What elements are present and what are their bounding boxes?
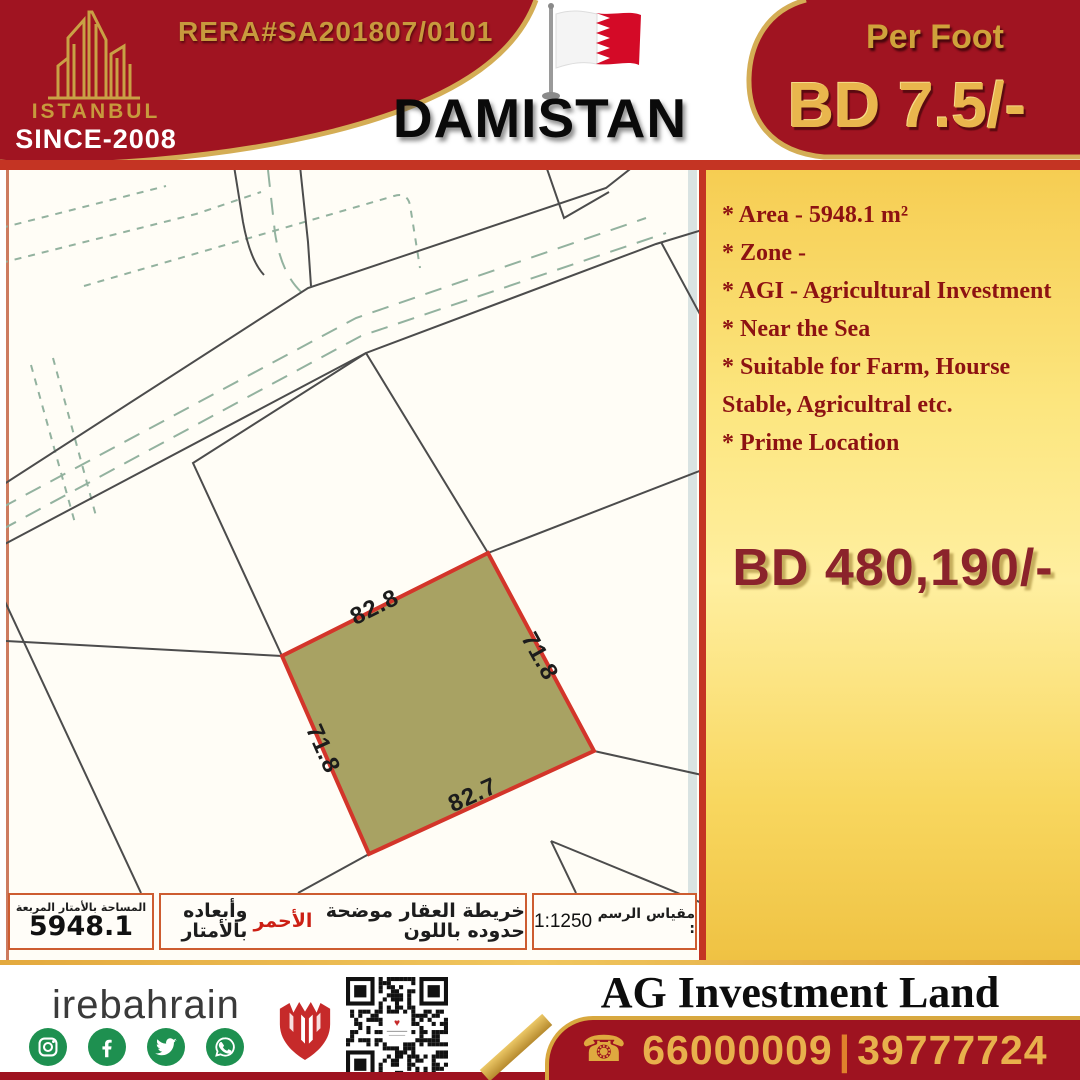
social-handle: irebahrain xyxy=(52,983,240,1028)
facebook-icon[interactable] xyxy=(88,1028,126,1066)
svg-text:♥: ♥ xyxy=(394,1018,400,1029)
red-shield-logo-icon xyxy=(276,997,334,1065)
legend-area-cell: المساحة بالأمتار المربعة 5948.1 xyxy=(8,893,154,950)
detail-sea: * Near the Sea xyxy=(722,310,1072,348)
scale-label: مقياس الرسم : xyxy=(592,907,695,936)
phone-secondary: 39777724 xyxy=(857,1027,1047,1073)
phone-bar: ☎ 66000009|39777724 xyxy=(545,1016,1080,1080)
note-after: وأبعاده بالأمتار xyxy=(161,902,247,942)
note-red-word: الأحمر xyxy=(253,912,312,932)
rera-number: RERA#SA201807/0101 xyxy=(178,16,493,48)
map-legend-table: المساحة بالأمتار المربعة 5948.1 خريطة ال… xyxy=(8,893,697,950)
scale-value: 1:1250 xyxy=(534,912,592,932)
cadastral-map: 82.8 71.8 71.8 82.7 المساحة بالأمتار الم… xyxy=(6,170,699,960)
detail-suitable: * Suitable for Farm, Hourse xyxy=(722,348,1072,386)
social-icons xyxy=(29,1028,244,1066)
note-before: خريطة العقار موضحة حدوده باللون xyxy=(318,902,525,942)
brand-name: ISTANBUL xyxy=(18,100,174,124)
qr-code: ♥ xyxy=(346,977,448,1079)
flyer-page: ISTANBUL SINCE-2008 RERA#SA201807/0101 D… xyxy=(0,0,1080,1080)
brand-since: SINCE-2008 xyxy=(8,124,184,155)
map-panel-divider xyxy=(699,160,706,962)
whatsapp-icon[interactable] xyxy=(206,1028,244,1066)
detail-area: * Area - 5948.1 m² xyxy=(722,196,1072,234)
legend-scale-cell: 1:1250 مقياس الرسم : xyxy=(532,893,697,950)
total-price: BD 480,190/- xyxy=(706,538,1080,598)
red-divider xyxy=(0,160,1080,170)
phone-separator: | xyxy=(833,1027,857,1073)
company-name: AG Investment Land xyxy=(555,967,1045,1018)
telephone-icon: ☎ xyxy=(581,1032,626,1068)
per-foot-price: BD 7.5/- xyxy=(742,68,1072,142)
location-title: DAMISTAN xyxy=(320,86,760,150)
map-drawing: 82.8 71.8 71.8 82.7 xyxy=(6,170,699,960)
plot-polygon xyxy=(282,553,594,854)
detail-location: * Prime Location xyxy=(722,424,1072,462)
phone-primary: 66000009 xyxy=(642,1027,832,1073)
detail-zone: * Zone - xyxy=(722,234,1072,272)
istanbul-skyline-logo-icon xyxy=(28,4,158,102)
detail-suitable-cont: Stable, Agricultral etc. xyxy=(722,386,1072,424)
per-foot-label: Per Foot xyxy=(830,18,1040,57)
legend-note-cell: خريطة العقار موضحة حدوده باللون الأحمر و… xyxy=(159,893,527,950)
detail-agi: * AGI - Agricultural Investment xyxy=(722,272,1072,310)
area-value: 5948.1 xyxy=(29,913,133,941)
details-list: * Area - 5948.1 m² * Zone - * AGI - Agri… xyxy=(722,196,1072,462)
twitter-icon[interactable] xyxy=(147,1028,185,1066)
phone-numbers: 66000009|39777724 xyxy=(642,1027,1047,1074)
details-panel: * Area - 5948.1 m² * Zone - * AGI - Agri… xyxy=(706,170,1080,960)
instagram-icon[interactable] xyxy=(29,1028,67,1066)
